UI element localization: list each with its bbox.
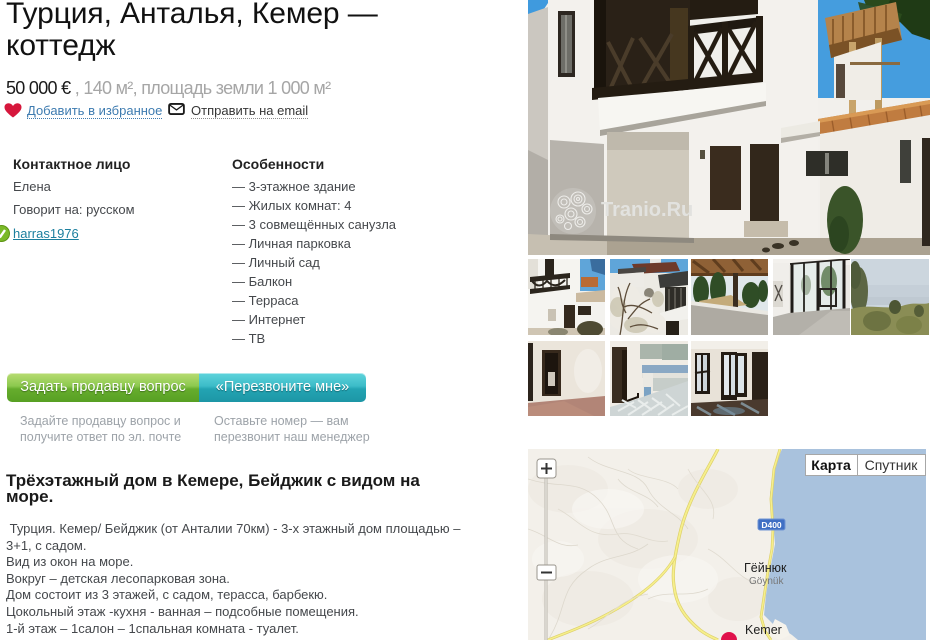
svg-text:Göynük: Göynük — [749, 576, 784, 587]
svg-text:Kemer: Kemer — [745, 623, 782, 637]
svg-text:Спутник: Спутник — [865, 457, 919, 473]
svg-text:Гёйнюк: Гёйнюк — [744, 561, 787, 575]
svg-text:Карта: Карта — [811, 457, 851, 473]
svg-text:Tranio.Ru: Tranio.Ru — [601, 199, 693, 221]
svg-text:D400: D400 — [761, 520, 782, 530]
